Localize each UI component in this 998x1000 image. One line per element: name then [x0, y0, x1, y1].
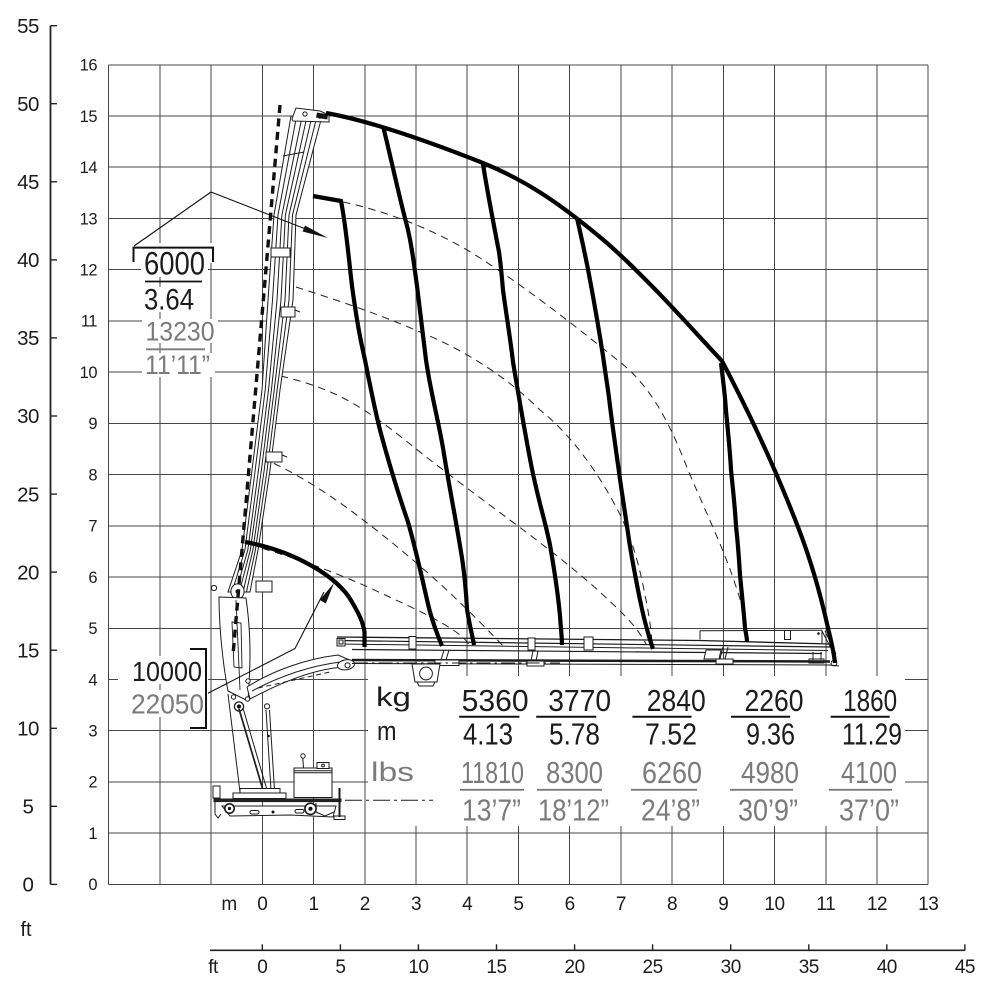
svg-text:30: 30: [721, 957, 741, 978]
svg-text:5: 5: [88, 620, 97, 638]
svg-text:ft: ft: [20, 919, 32, 941]
svg-text:11’11”: 11’11”: [145, 350, 210, 380]
svg-text:16: 16: [80, 57, 98, 75]
svg-text:10: 10: [80, 364, 98, 382]
svg-text:6: 6: [88, 569, 97, 587]
svg-text:9.36: 9.36: [746, 717, 795, 752]
svg-text:8: 8: [88, 466, 97, 484]
svg-text:11.29: 11.29: [842, 717, 902, 752]
svg-text:10000: 10000: [132, 656, 202, 687]
svg-text:m: m: [377, 716, 397, 746]
svg-text:3.64: 3.64: [144, 284, 194, 317]
svg-text:18’12”: 18’12”: [538, 793, 609, 828]
svg-text:5: 5: [335, 957, 345, 978]
svg-text:2260: 2260: [745, 683, 804, 718]
svg-text:55: 55: [17, 15, 39, 38]
svg-text:30’9”: 30’9”: [738, 793, 798, 828]
svg-text:5: 5: [513, 894, 523, 915]
svg-text:45: 45: [17, 171, 39, 194]
svg-text:2: 2: [360, 894, 370, 915]
svg-text:0: 0: [88, 876, 97, 894]
svg-text:8300: 8300: [546, 755, 603, 790]
svg-text:20: 20: [565, 957, 585, 978]
svg-text:5360: 5360: [462, 683, 529, 718]
svg-text:9: 9: [718, 894, 728, 915]
svg-text:40: 40: [877, 957, 897, 978]
svg-text:0: 0: [23, 874, 34, 897]
svg-text:50: 50: [17, 93, 39, 116]
svg-text:40: 40: [17, 249, 39, 272]
svg-text:2840: 2840: [647, 683, 706, 718]
svg-text:35: 35: [799, 957, 819, 978]
svg-text:3: 3: [88, 723, 97, 741]
svg-text:5: 5: [23, 796, 34, 819]
svg-text:20: 20: [17, 561, 39, 584]
svg-text:4980: 4980: [741, 755, 799, 790]
svg-text:4100: 4100: [841, 755, 897, 790]
svg-text:0: 0: [257, 957, 267, 978]
svg-text:6: 6: [565, 894, 575, 915]
svg-text:11810: 11810: [461, 755, 524, 790]
svg-text:37’0”: 37’0”: [839, 793, 899, 828]
svg-text:3770: 3770: [548, 683, 611, 718]
svg-text:0: 0: [257, 894, 267, 915]
svg-text:11: 11: [81, 313, 97, 331]
svg-text:22050: 22050: [131, 689, 204, 720]
svg-text:10: 10: [17, 718, 39, 741]
svg-text:6260: 6260: [642, 755, 702, 790]
svg-text:1860: 1860: [843, 683, 897, 718]
svg-text:4: 4: [88, 671, 97, 689]
svg-text:6000: 6000: [144, 246, 205, 282]
svg-text:8: 8: [667, 894, 677, 915]
svg-text:7.52: 7.52: [645, 717, 697, 752]
svg-text:30: 30: [17, 405, 39, 428]
svg-text:3: 3: [411, 894, 421, 915]
svg-text:kg: kg: [376, 682, 411, 712]
svg-text:4.13: 4.13: [463, 717, 513, 752]
svg-text:24’8”: 24’8”: [641, 793, 700, 828]
svg-text:10: 10: [764, 894, 784, 915]
svg-text:lbs: lbs: [371, 757, 414, 787]
svg-text:13: 13: [918, 894, 938, 915]
svg-text:25: 25: [643, 957, 663, 978]
svg-text:ft: ft: [208, 957, 219, 978]
svg-text:12: 12: [80, 262, 98, 280]
svg-text:9: 9: [88, 415, 97, 433]
svg-text:1: 1: [308, 894, 318, 915]
svg-text:15: 15: [80, 108, 98, 126]
svg-text:4: 4: [462, 894, 473, 915]
svg-text:25: 25: [17, 483, 39, 506]
svg-text:12: 12: [867, 894, 887, 915]
svg-text:14: 14: [80, 159, 98, 177]
svg-text:35: 35: [17, 327, 39, 350]
svg-text:7: 7: [616, 894, 626, 915]
svg-text:5.78: 5.78: [549, 717, 600, 752]
svg-text:2: 2: [88, 774, 97, 792]
svg-text:10: 10: [408, 957, 428, 978]
svg-text:13: 13: [80, 210, 98, 228]
svg-text:1: 1: [88, 825, 97, 843]
svg-text:7: 7: [88, 518, 97, 536]
svg-text:15: 15: [17, 639, 39, 662]
svg-text:13’7”: 13’7”: [462, 793, 521, 828]
svg-text:11: 11: [816, 894, 835, 915]
svg-text:13230: 13230: [146, 317, 215, 347]
svg-text:15: 15: [486, 957, 506, 978]
svg-text:45: 45: [955, 957, 975, 978]
svg-text:m: m: [221, 894, 236, 915]
